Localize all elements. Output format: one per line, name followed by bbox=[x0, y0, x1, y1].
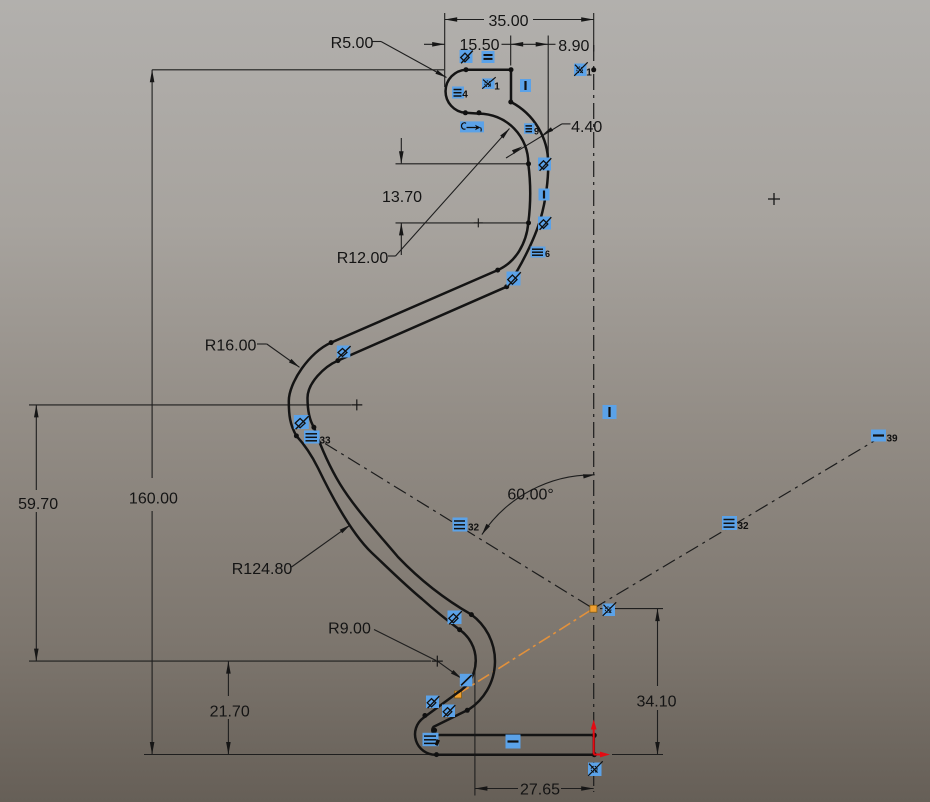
svg-text:1: 1 bbox=[494, 82, 500, 93]
svg-text:9: 9 bbox=[534, 127, 539, 137]
svg-text:4: 4 bbox=[462, 90, 468, 101]
svg-text:32: 32 bbox=[468, 523, 480, 534]
svg-text:32: 32 bbox=[737, 521, 749, 532]
svg-text:35.00: 35.00 bbox=[488, 13, 528, 30]
svg-text:4.40: 4.40 bbox=[571, 119, 602, 136]
svg-text:34.10: 34.10 bbox=[636, 693, 676, 710]
svg-text:39: 39 bbox=[886, 434, 898, 445]
svg-text:27.65: 27.65 bbox=[520, 781, 560, 798]
svg-text:160.00: 160.00 bbox=[129, 490, 178, 507]
svg-text:R16.00: R16.00 bbox=[205, 338, 257, 355]
svg-text:8.90: 8.90 bbox=[558, 38, 589, 55]
svg-text:21.70: 21.70 bbox=[210, 703, 250, 720]
svg-text:59.70: 59.70 bbox=[18, 496, 58, 513]
svg-text:R124.80: R124.80 bbox=[232, 561, 293, 578]
svg-text:R12.00: R12.00 bbox=[337, 250, 389, 267]
svg-text:1: 1 bbox=[586, 68, 592, 79]
svg-text:6: 6 bbox=[545, 249, 550, 259]
svg-text:13.70: 13.70 bbox=[382, 189, 422, 206]
svg-text:R9.00: R9.00 bbox=[328, 621, 371, 638]
svg-text:R5.00: R5.00 bbox=[331, 35, 374, 52]
svg-text:60.00°: 60.00° bbox=[507, 487, 553, 504]
svg-text:33: 33 bbox=[319, 436, 331, 447]
